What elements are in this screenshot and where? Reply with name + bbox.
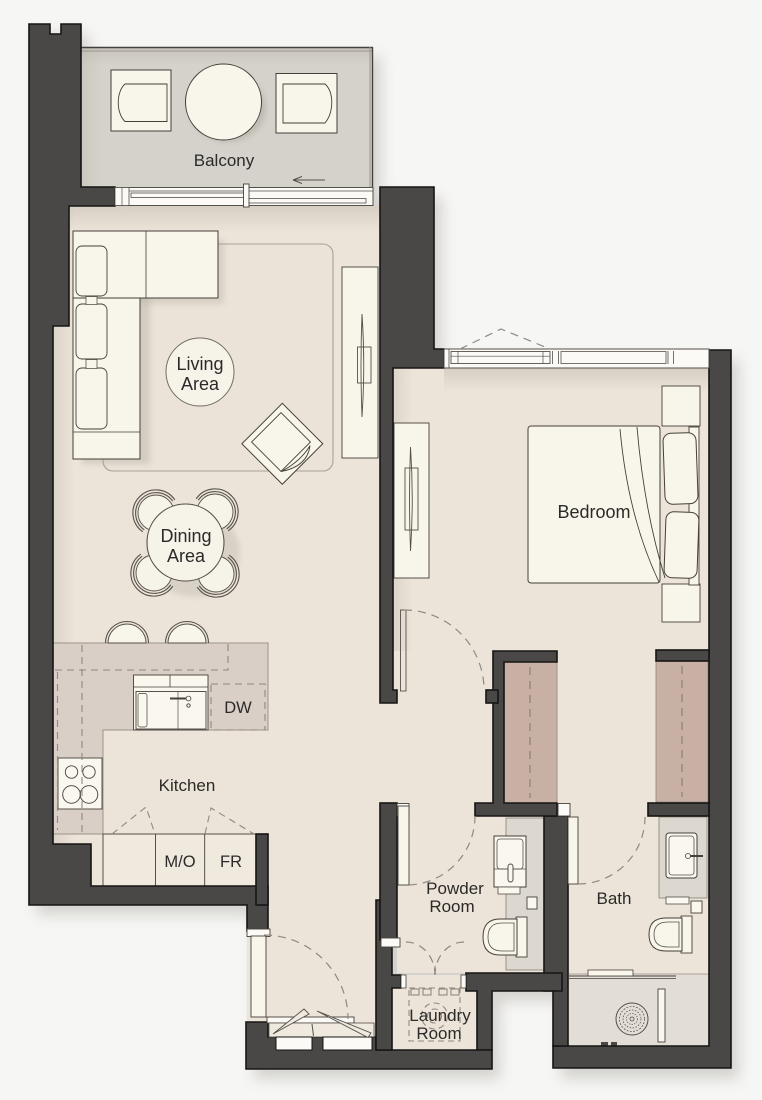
svg-text:DW: DW [224, 699, 252, 717]
svg-text:Balcony: Balcony [194, 151, 255, 170]
svg-text:Dining: Dining [160, 526, 211, 546]
svg-text:Powder: Powder [426, 879, 484, 898]
svg-text:Room: Room [429, 897, 474, 916]
svg-text:FR: FR [220, 853, 242, 871]
svg-text:Kitchen: Kitchen [159, 776, 216, 795]
svg-text:Living: Living [176, 354, 223, 374]
svg-text:Room: Room [416, 1024, 461, 1043]
svg-text:M/O: M/O [164, 853, 195, 871]
svg-text:Area: Area [167, 546, 206, 566]
svg-text:Area: Area [181, 374, 220, 394]
svg-text:Bath: Bath [597, 889, 632, 908]
svg-text:Bedroom: Bedroom [557, 502, 630, 522]
svg-text:Laundry: Laundry [409, 1006, 471, 1025]
